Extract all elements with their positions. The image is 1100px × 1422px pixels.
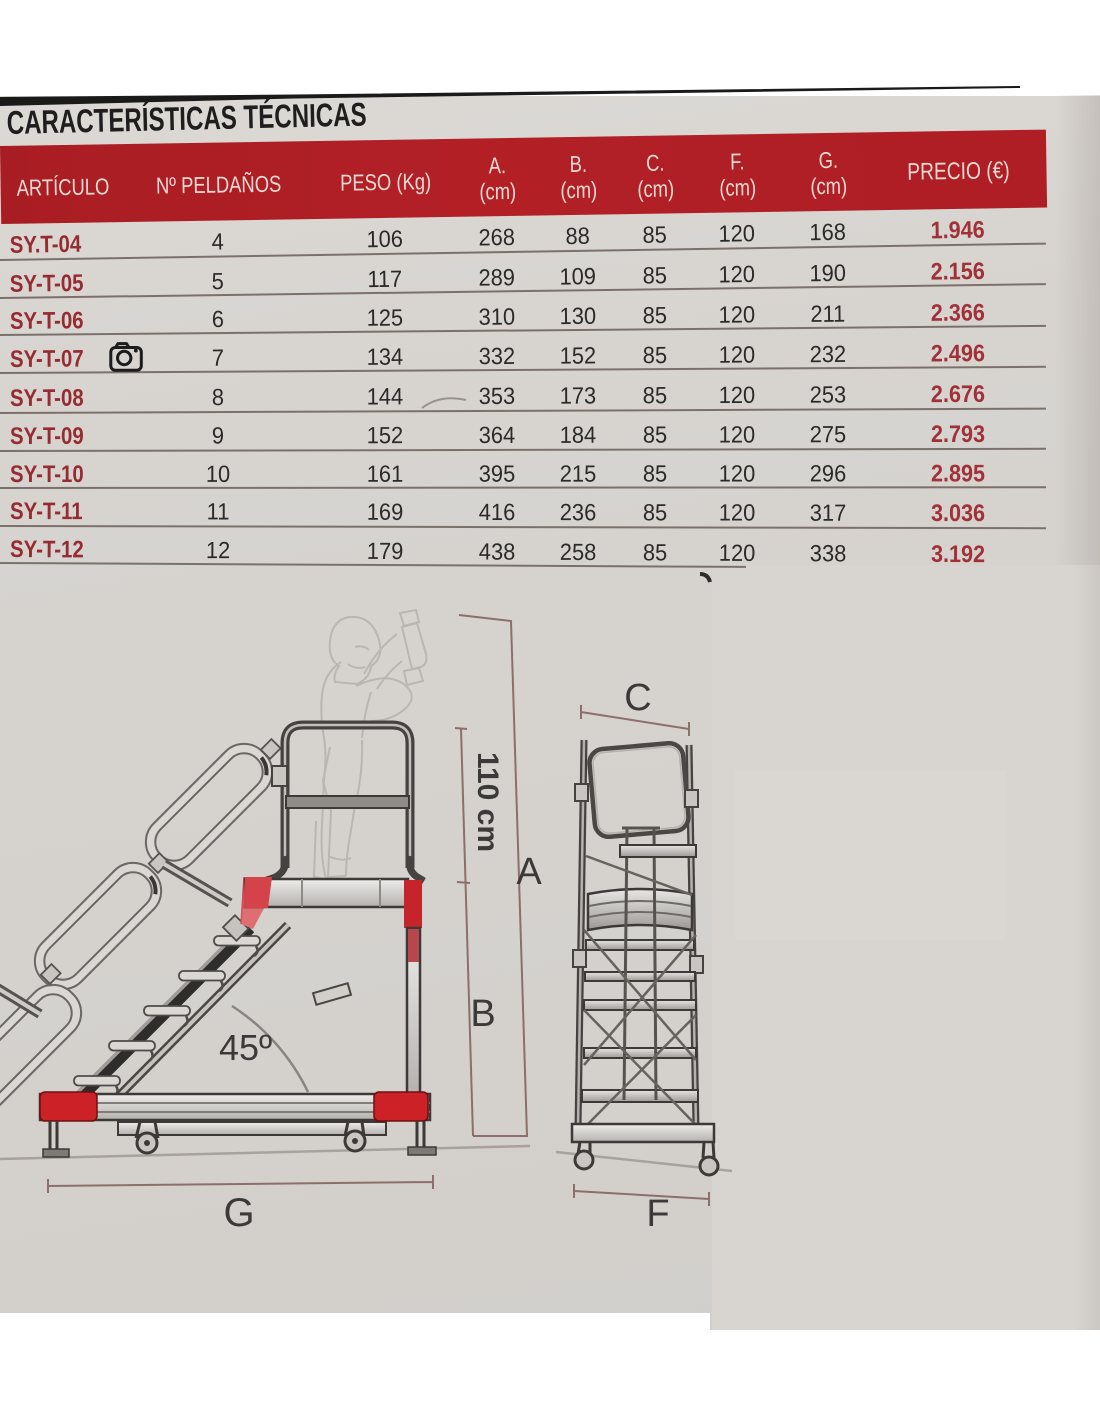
svg-text:45º: 45º [219,1027,272,1068]
svg-text:B: B [470,993,495,1035]
svg-text:F: F [646,1193,669,1235]
svg-text:G: G [223,1191,254,1235]
svg-text:110 cm: 110 cm [471,752,504,852]
svg-text:A: A [516,851,542,893]
svg-text:C: C [624,677,651,719]
